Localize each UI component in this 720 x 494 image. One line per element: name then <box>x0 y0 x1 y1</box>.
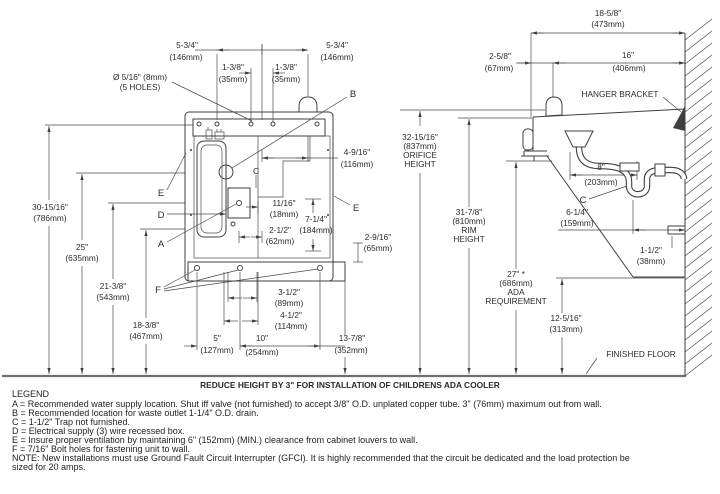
top-mounting-strip <box>193 119 325 136</box>
dim-543-in: 21-3/8" <box>100 281 127 291</box>
dim-313-in: 12-5/16" <box>550 313 581 323</box>
dim-473-mm: (473mm) <box>591 19 624 29</box>
dim-159-mm: (159mm) <box>560 218 593 228</box>
wall-hatch-stroke <box>685 283 712 304</box>
wall-hatch-stroke <box>685 163 712 184</box>
installation-diagram: 5-3/4" (146mm) 5-3/4" (146mm) 1-3/8" (35… <box>0 0 720 494</box>
wall-hatch-stroke <box>685 355 712 376</box>
wall-hatch-stroke <box>685 55 712 76</box>
dim-313-mm: (313mm) <box>549 324 582 334</box>
wall-hatch-stroke <box>685 91 712 112</box>
dim-406-in: 16" <box>622 50 634 60</box>
callout-f: F <box>155 285 161 296</box>
wall-hatch-stroke <box>685 31 712 52</box>
wall-hatch-stroke <box>685 331 712 352</box>
dim-38-in: 1-1/2" <box>640 245 662 255</box>
centerline-symbol: C <box>253 166 259 176</box>
dim-89-mm: (89mm) <box>275 298 304 308</box>
dim-467-mm: (467mm) <box>129 331 162 341</box>
callout-b: B <box>350 89 356 100</box>
dim-146R-in: 5-3/4" <box>326 40 348 50</box>
orifice-l4: HEIGHT <box>404 159 435 169</box>
dim-146L-in: 5-3/4" <box>176 40 198 50</box>
wall-hatch-stroke <box>685 43 712 64</box>
dim-67-mm: (67mm) <box>485 63 514 73</box>
dim-38-mm: (38mm) <box>637 256 666 266</box>
holes-note-1: Ø 5/16" (8mm) <box>113 72 167 82</box>
hanger-bracket-label: HANGER BRACKET <box>582 89 659 99</box>
dim-159-in: 6-1/4" <box>566 207 588 217</box>
dim-635-in: 25" <box>76 242 88 252</box>
side-leaders <box>586 97 681 374</box>
tank-inner <box>201 145 222 233</box>
electrical-box <box>228 188 250 218</box>
wall-hatch-stroke <box>685 199 712 220</box>
dim-254-mm: (254mm) <box>245 347 278 357</box>
dim-146L-mm: (146mm) <box>169 52 202 62</box>
dim-62-mm: (62mm) <box>266 236 295 246</box>
callout-a: A <box>158 239 165 250</box>
callout-e-left: E <box>158 188 164 199</box>
drain-funnel <box>565 131 593 147</box>
note-line-2: sized for 20 amps. <box>12 462 86 472</box>
legend-title: LEGEND <box>12 389 50 399</box>
dim-406-mm: (406mm) <box>612 63 645 73</box>
callout-c-side: C <box>580 195 587 206</box>
small-hole <box>231 222 235 226</box>
bubbler-front <box>299 97 317 112</box>
wall-hatch-stroke <box>685 151 712 172</box>
slip-nut-1 <box>620 163 639 171</box>
wall-hatch-stroke <box>685 307 712 328</box>
waste-stub <box>668 226 685 248</box>
dim-116-in: 4-9/16" <box>344 147 371 157</box>
dim-35L-in: 1-3/8" <box>222 62 244 72</box>
wall-hatch-stroke <box>685 79 712 100</box>
mid-dimensions <box>400 110 684 374</box>
dim-184-mm: (184mm) <box>299 225 332 235</box>
tank-terminals <box>206 127 224 139</box>
wall-hatch-stroke <box>685 19 712 40</box>
bottom-mounting-strip <box>188 262 345 281</box>
back-panel-outline <box>185 112 333 281</box>
wall-hatch-stroke <box>685 295 712 316</box>
dim-352-mm: (352mm) <box>334 345 367 355</box>
wall-hatch-stroke <box>685 211 712 232</box>
dim-543-mm: (543mm) <box>96 292 129 302</box>
dim-67-in: 2-5/8" <box>489 51 511 61</box>
wall-hatch-stroke <box>685 127 712 148</box>
callout-e-right: E <box>353 203 359 214</box>
rim-l4: HEIGHT <box>453 234 484 244</box>
dim-127-mm: (127mm) <box>200 345 233 355</box>
dim-35R-mm: (35mm) <box>272 74 301 84</box>
dim-786-mm: (786mm) <box>33 213 66 223</box>
wall-hatch-stroke <box>685 319 712 340</box>
callout-d: D <box>158 210 165 221</box>
supply-hole <box>237 201 242 206</box>
step-detail <box>258 136 310 197</box>
dim-35L-mm: (35mm) <box>219 74 248 84</box>
slip-nut-2 <box>655 164 665 176</box>
dim-203-in: 8" <box>597 162 605 172</box>
dim-254-in: 10" <box>256 333 268 343</box>
finished-floor-label: FINISHED FLOOR <box>606 349 676 359</box>
dim-116-mm: (116mm) <box>341 159 374 169</box>
dim-35R-in: 1-3/8" <box>275 62 297 72</box>
dim-62-in: 2-1/2" <box>269 225 291 235</box>
mid-dimension-lines <box>420 111 562 374</box>
dim-473-in: 18-5/8" <box>595 8 622 18</box>
wall-hatch-stroke <box>685 259 712 280</box>
wall-hatch-stroke <box>685 67 712 88</box>
dim-786-in: 30-15/16" <box>32 202 68 212</box>
dim-184-in: 7-1/4" <box>305 214 327 224</box>
wall-hatch-stroke <box>685 343 712 364</box>
wall-hatch-stroke <box>685 223 712 244</box>
dim-65-mm: (65mm) <box>364 243 393 253</box>
wall-hatch-stroke <box>685 247 712 268</box>
holes-note-2: (5 HOLES) <box>120 82 161 92</box>
wall-hatch-stroke <box>685 235 712 256</box>
note-line-1: NOTE: New installations must use Ground … <box>12 453 630 463</box>
dim-352-in: 13-7/8" <box>339 333 366 343</box>
dim-18-in: 11/16" <box>272 198 295 208</box>
wall-hatch-stroke <box>685 115 712 136</box>
wall-hatch-stroke <box>685 271 712 292</box>
wall-hatch-stroke <box>685 103 712 124</box>
dim-635-mm: (635mm) <box>65 253 98 263</box>
dim-127-in: 5" <box>213 333 221 343</box>
dim-146R-mm: (146mm) <box>320 52 353 62</box>
bubbler-side <box>546 97 562 116</box>
side-dimension-lines <box>516 33 685 234</box>
reduce-height-note: REDUCE HEIGHT BY 3" FOR INSTALLATION OF … <box>200 380 500 390</box>
dim-65-in: 2-9/16" <box>365 232 392 242</box>
dim-203-mm: (203mm) <box>584 177 617 187</box>
bottom-bolt-holes <box>195 266 323 271</box>
dim-114-in: 4-1/2" <box>280 310 302 320</box>
wall-hatch-stroke <box>685 187 712 208</box>
dim-89-in: 3-1/2" <box>278 287 300 297</box>
dim-18-mm: (18mm) <box>270 209 299 219</box>
text-layer: 5-3/4" (146mm) 5-3/4" (146mm) 1-3/8" (35… <box>12 8 676 472</box>
wall-hatch-stroke <box>685 175 712 196</box>
wall-hatching <box>685 19 712 376</box>
wall-hatch-stroke <box>685 139 712 160</box>
dim-114-mm: (114mm) <box>275 321 308 331</box>
ada-l4: REQUIREMENT <box>485 296 546 306</box>
height-reference-lines <box>45 125 193 229</box>
dim-467-in: 18-3/8" <box>133 320 160 330</box>
callout-leaders <box>164 82 350 291</box>
bubbler-button <box>523 129 533 150</box>
